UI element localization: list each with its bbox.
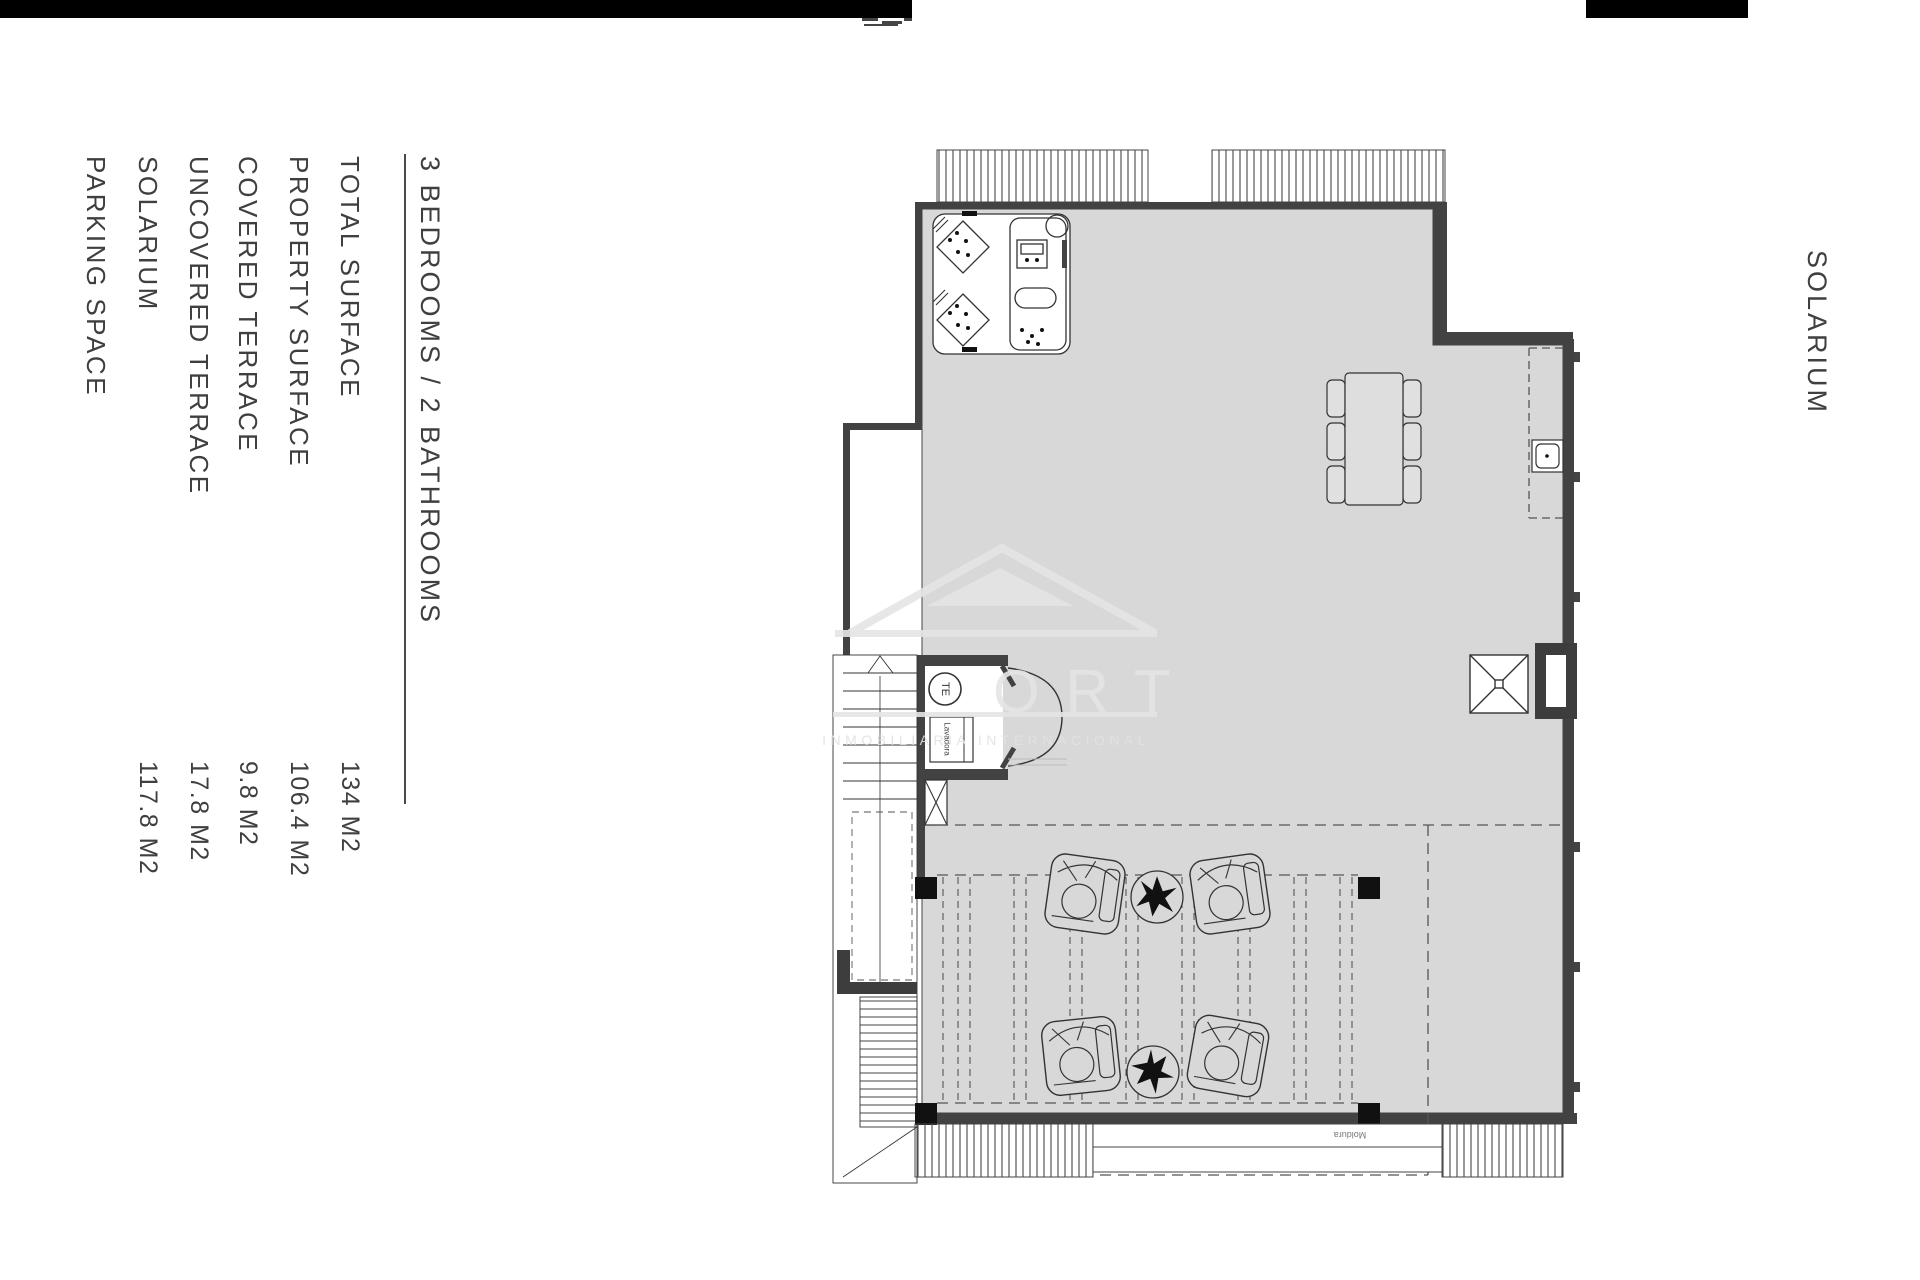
plant-table: [1131, 871, 1183, 923]
bottom-exterior: Moldura: [915, 1124, 1563, 1177]
floorplan-drawing: TE Lavadora: [0, 0, 1920, 1280]
spa-area: [933, 211, 1070, 354]
molding-label: Moldura: [1334, 1130, 1367, 1140]
entry-door: [1535, 643, 1577, 719]
watermark-tagline-text: INMOBILIARIA INTERNACIONAL: [822, 732, 1150, 748]
right-wall-ticks: [1574, 352, 1580, 1092]
micro-text-marks: [862, 18, 912, 26]
top-railing-hatch: [937, 150, 1445, 202]
dining-set: [1327, 373, 1421, 505]
water-heater-label: TE: [939, 682, 951, 696]
shower-tray: [1470, 655, 1528, 713]
kitchen-sink: [1532, 440, 1563, 472]
floorplan-sheet: TOTAL SURFACE PROPERTY SURFACE COVERED T…: [0, 0, 1920, 1280]
